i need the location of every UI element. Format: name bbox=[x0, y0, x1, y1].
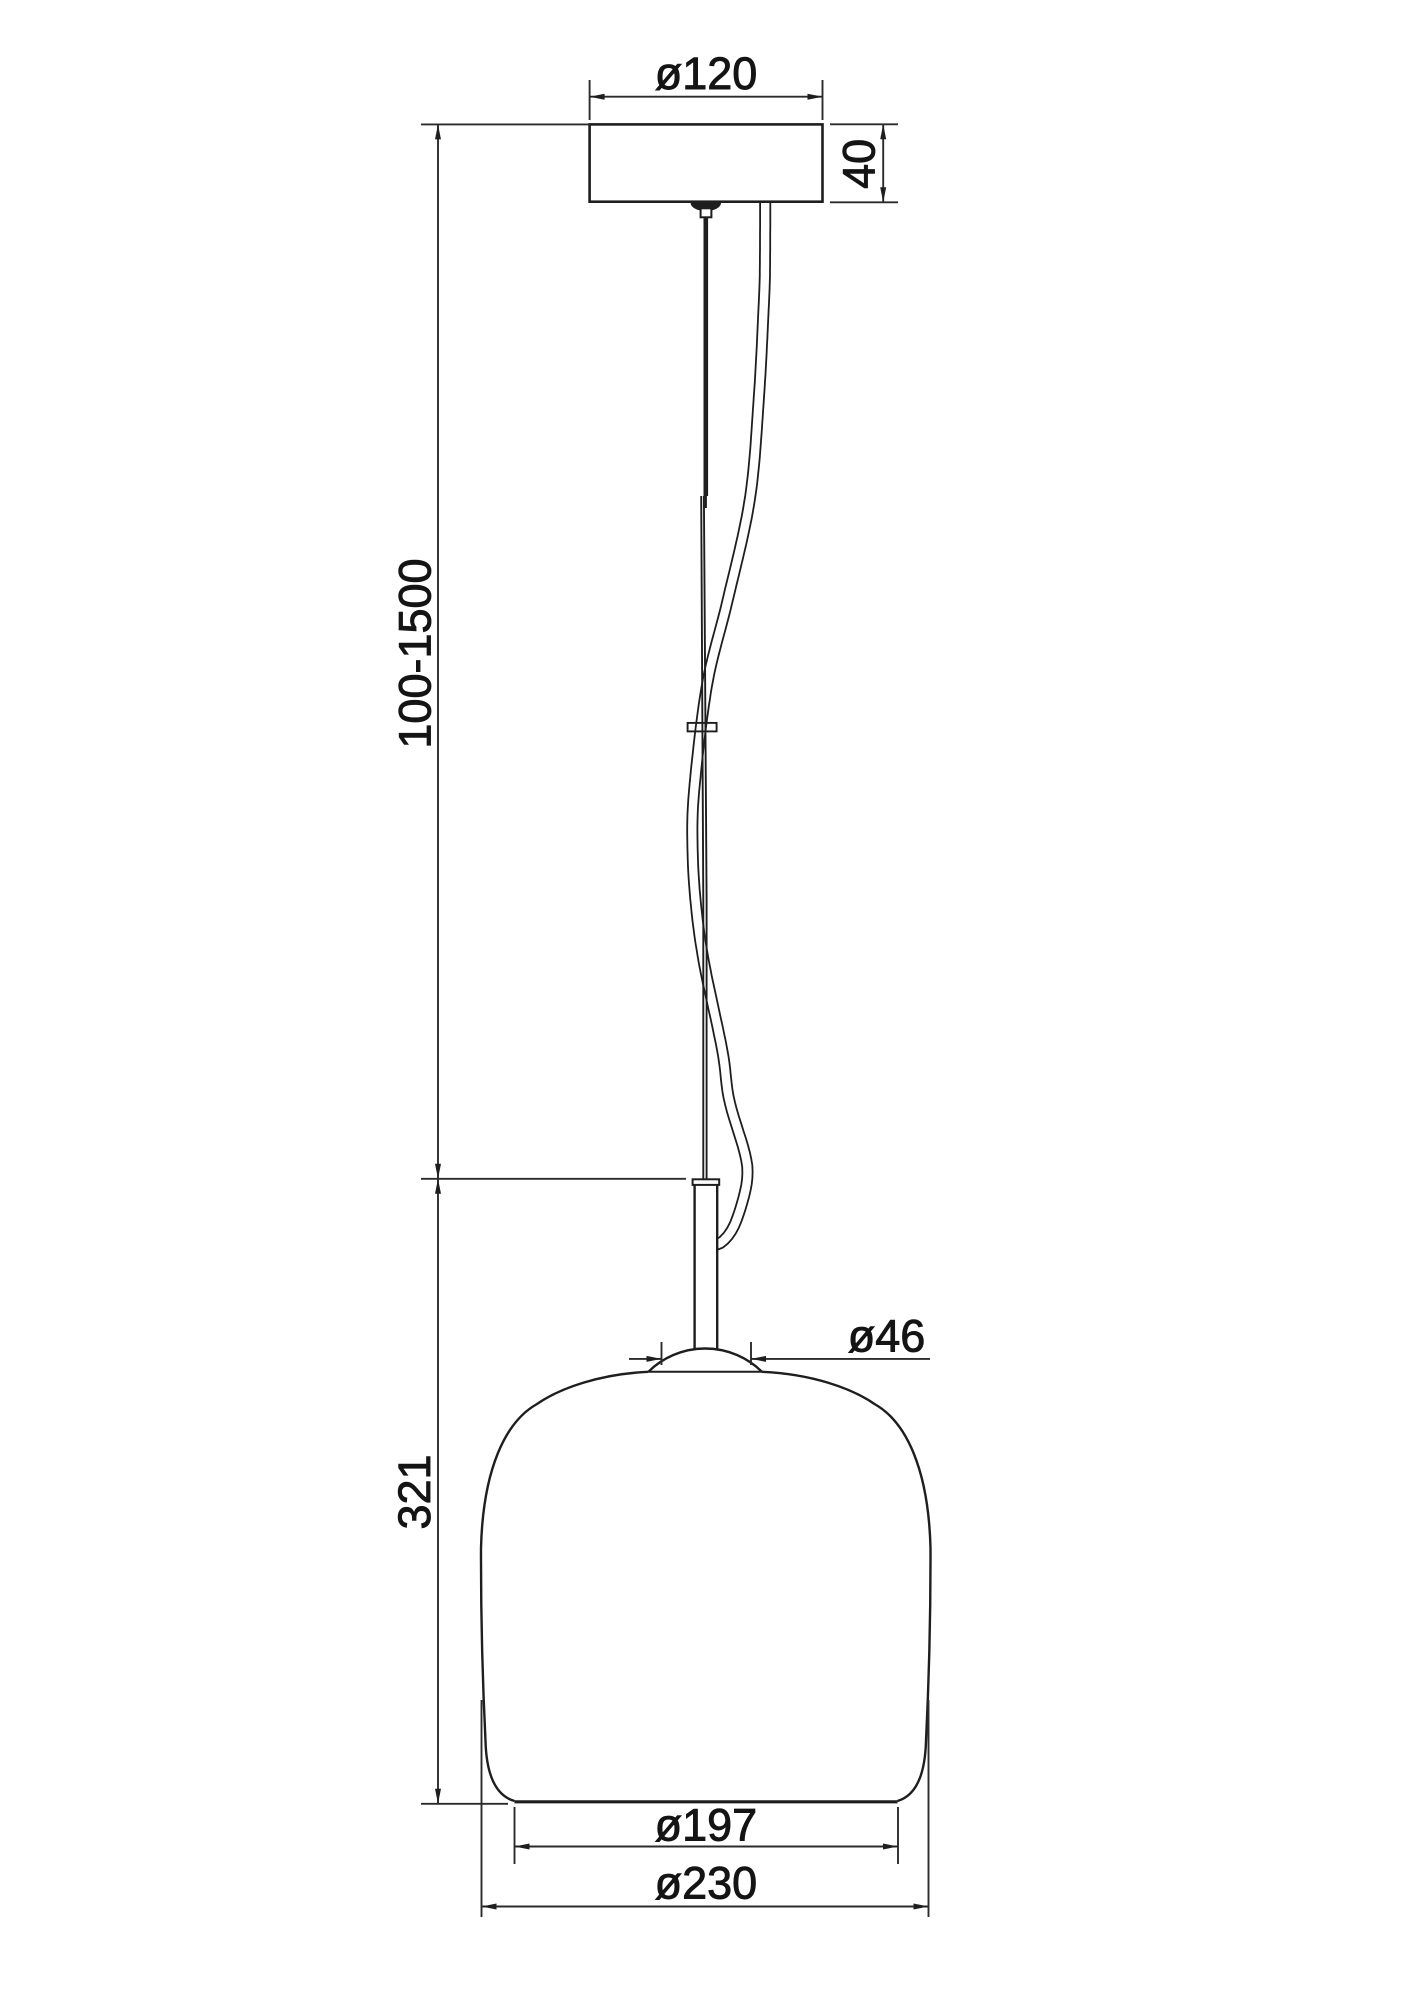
svg-text:ø230: ø230 bbox=[655, 1858, 758, 1909]
svg-text:ø197: ø197 bbox=[655, 1800, 758, 1851]
svg-text:321: 321 bbox=[389, 1454, 440, 1529]
svg-text:100-1500: 100-1500 bbox=[389, 558, 440, 748]
svg-text:40: 40 bbox=[834, 139, 885, 189]
svg-text:ø120: ø120 bbox=[655, 48, 758, 99]
svg-text:ø46: ø46 bbox=[848, 1311, 926, 1362]
